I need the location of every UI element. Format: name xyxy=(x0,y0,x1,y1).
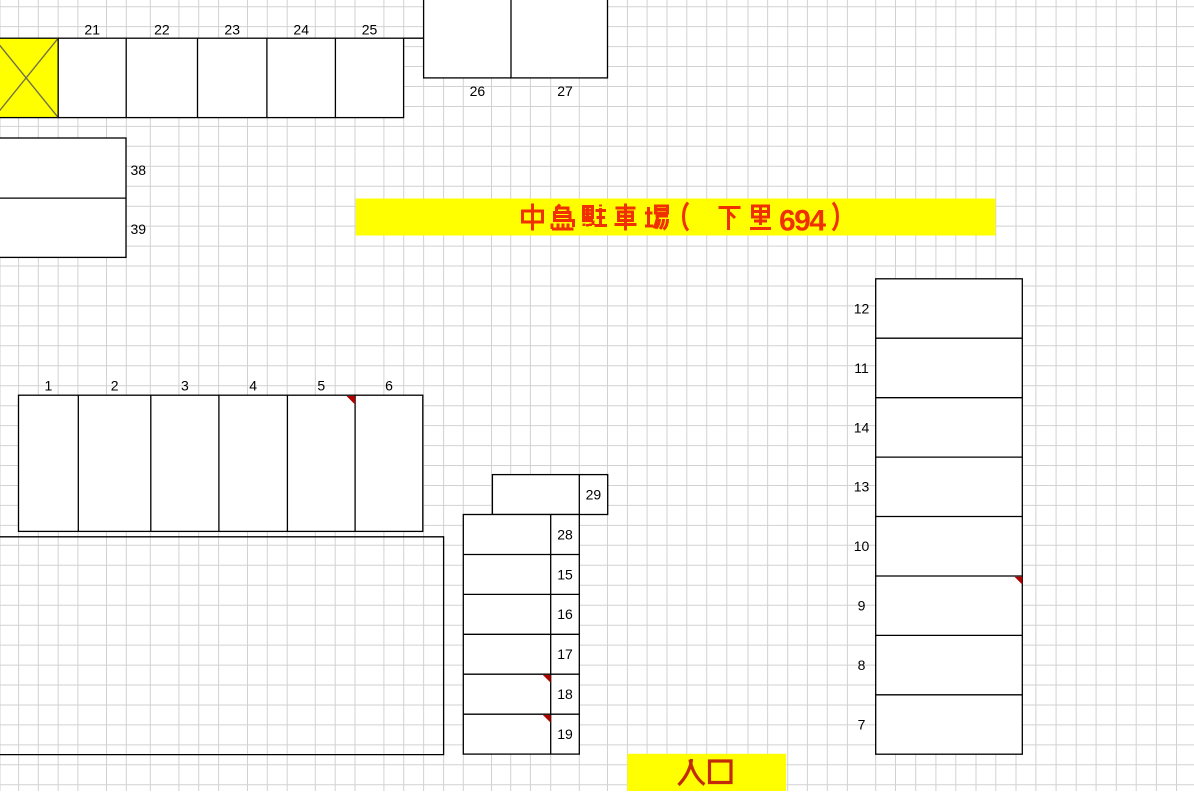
svg-text:28: 28 xyxy=(557,526,573,542)
svg-text:18: 18 xyxy=(557,686,573,702)
svg-text:26: 26 xyxy=(470,83,486,99)
svg-text:19: 19 xyxy=(557,726,573,742)
svg-text:13: 13 xyxy=(854,479,870,495)
svg-text:22: 22 xyxy=(154,22,170,38)
svg-text:5: 5 xyxy=(317,377,325,393)
svg-text:11: 11 xyxy=(854,360,869,376)
svg-text:39: 39 xyxy=(131,221,147,237)
svg-text:29: 29 xyxy=(586,486,602,502)
svg-text:14: 14 xyxy=(854,419,870,435)
svg-text:38: 38 xyxy=(131,162,147,178)
svg-text:7: 7 xyxy=(858,717,866,733)
svg-text:694: 694 xyxy=(779,205,826,238)
svg-text:3: 3 xyxy=(181,377,189,393)
svg-text:10: 10 xyxy=(854,538,870,554)
svg-text:15: 15 xyxy=(557,566,573,582)
svg-text:2: 2 xyxy=(111,377,119,393)
svg-text:21: 21 xyxy=(84,22,100,38)
svg-text:1: 1 xyxy=(45,377,53,393)
svg-text:25: 25 xyxy=(362,22,378,38)
svg-text:6: 6 xyxy=(385,377,393,393)
svg-text:4: 4 xyxy=(249,377,257,393)
svg-text:27: 27 xyxy=(557,83,573,99)
svg-text:16: 16 xyxy=(557,606,573,622)
svg-text:12: 12 xyxy=(854,300,870,316)
svg-text:9: 9 xyxy=(858,598,866,614)
svg-text:17: 17 xyxy=(557,646,573,662)
svg-text:8: 8 xyxy=(858,657,866,673)
svg-text:23: 23 xyxy=(224,22,240,38)
svg-text:24: 24 xyxy=(293,22,309,38)
